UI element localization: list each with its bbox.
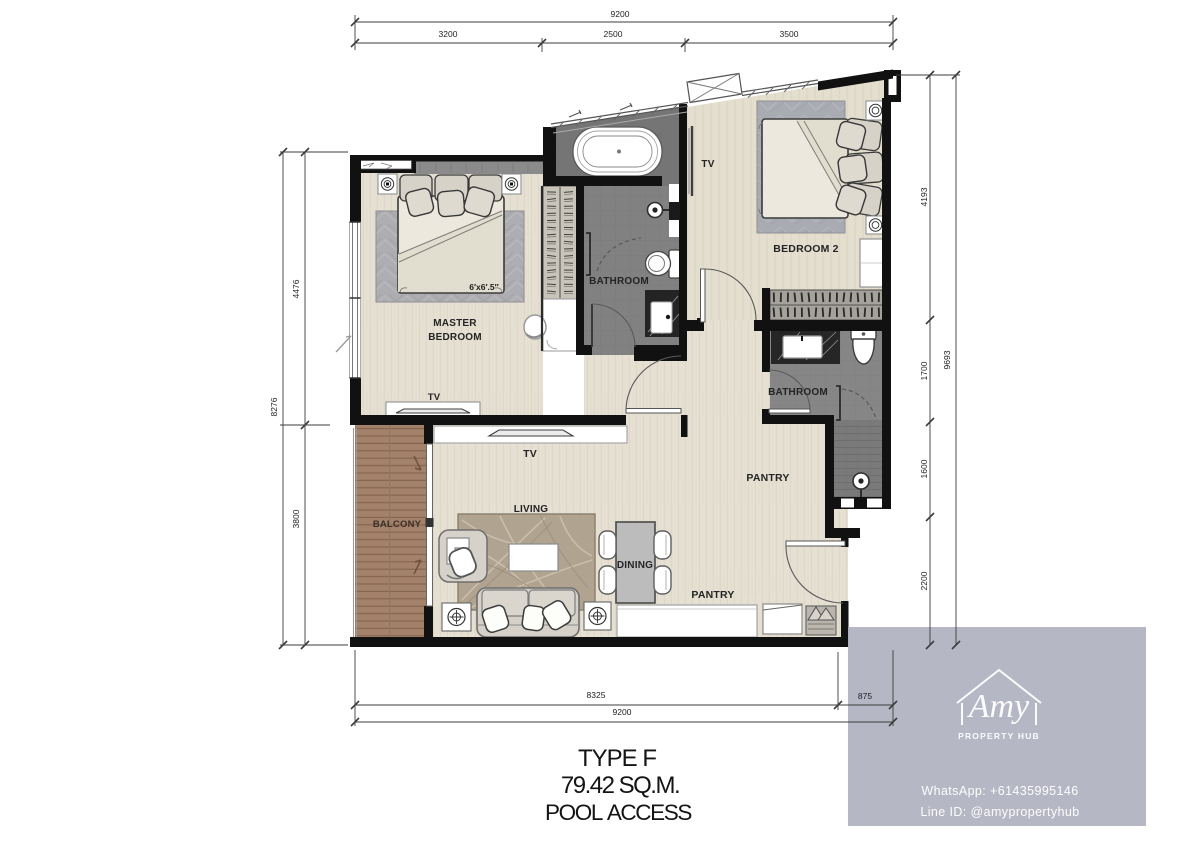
- svg-text:TV: TV: [428, 392, 441, 403]
- svg-text:TV: TV: [701, 159, 714, 170]
- svg-text:4193: 4193: [919, 187, 929, 206]
- svg-text:3500: 3500: [780, 29, 799, 39]
- svg-text:8325: 8325: [587, 690, 606, 700]
- svg-text:1700: 1700: [919, 361, 929, 380]
- svg-text:WhatsApp: +61435995146: WhatsApp: +61435995146: [921, 784, 1078, 798]
- svg-text:875: 875: [858, 691, 872, 701]
- svg-text:2500: 2500: [604, 29, 623, 39]
- svg-text:1600: 1600: [919, 459, 929, 478]
- svg-text:79.42 SQ.M.: 79.42 SQ.M.: [561, 772, 679, 799]
- svg-text:Line ID: @amypropertyhub: Line ID: @amypropertyhub: [920, 805, 1079, 819]
- svg-text:9693: 9693: [942, 350, 952, 369]
- svg-text:PROPERTY HUB: PROPERTY HUB: [958, 731, 1040, 741]
- svg-text:2200: 2200: [919, 571, 929, 590]
- svg-text:MASTER: MASTER: [433, 318, 477, 329]
- svg-text:LIVING: LIVING: [514, 504, 549, 515]
- svg-text:TYPE F: TYPE F: [578, 745, 656, 772]
- svg-text:6′x6′.5″: 6′x6′.5″: [469, 282, 498, 292]
- svg-text:BALCONY: BALCONY: [373, 519, 422, 530]
- svg-text:BATHROOM: BATHROOM: [589, 276, 649, 287]
- svg-text:9200: 9200: [611, 9, 630, 19]
- svg-text:POOL ACCESS: POOL ACCESS: [545, 800, 691, 825]
- svg-text:BATHROOM: BATHROOM: [768, 387, 828, 398]
- svg-text:3200: 3200: [439, 29, 458, 39]
- svg-text:PANTRY: PANTRY: [746, 472, 789, 484]
- svg-text:Amy: Amy: [967, 688, 1030, 725]
- svg-text:4476: 4476: [291, 279, 301, 298]
- svg-text:DINING: DINING: [617, 560, 653, 571]
- svg-text:9200: 9200: [613, 707, 632, 717]
- svg-text:BEDROOM: BEDROOM: [428, 332, 482, 343]
- svg-text:TV: TV: [523, 448, 537, 460]
- svg-text:BEDROOM 2: BEDROOM 2: [773, 243, 838, 255]
- svg-text:PANTRY: PANTRY: [691, 589, 734, 601]
- svg-text:8276: 8276: [269, 397, 279, 416]
- svg-text:3800: 3800: [291, 509, 301, 528]
